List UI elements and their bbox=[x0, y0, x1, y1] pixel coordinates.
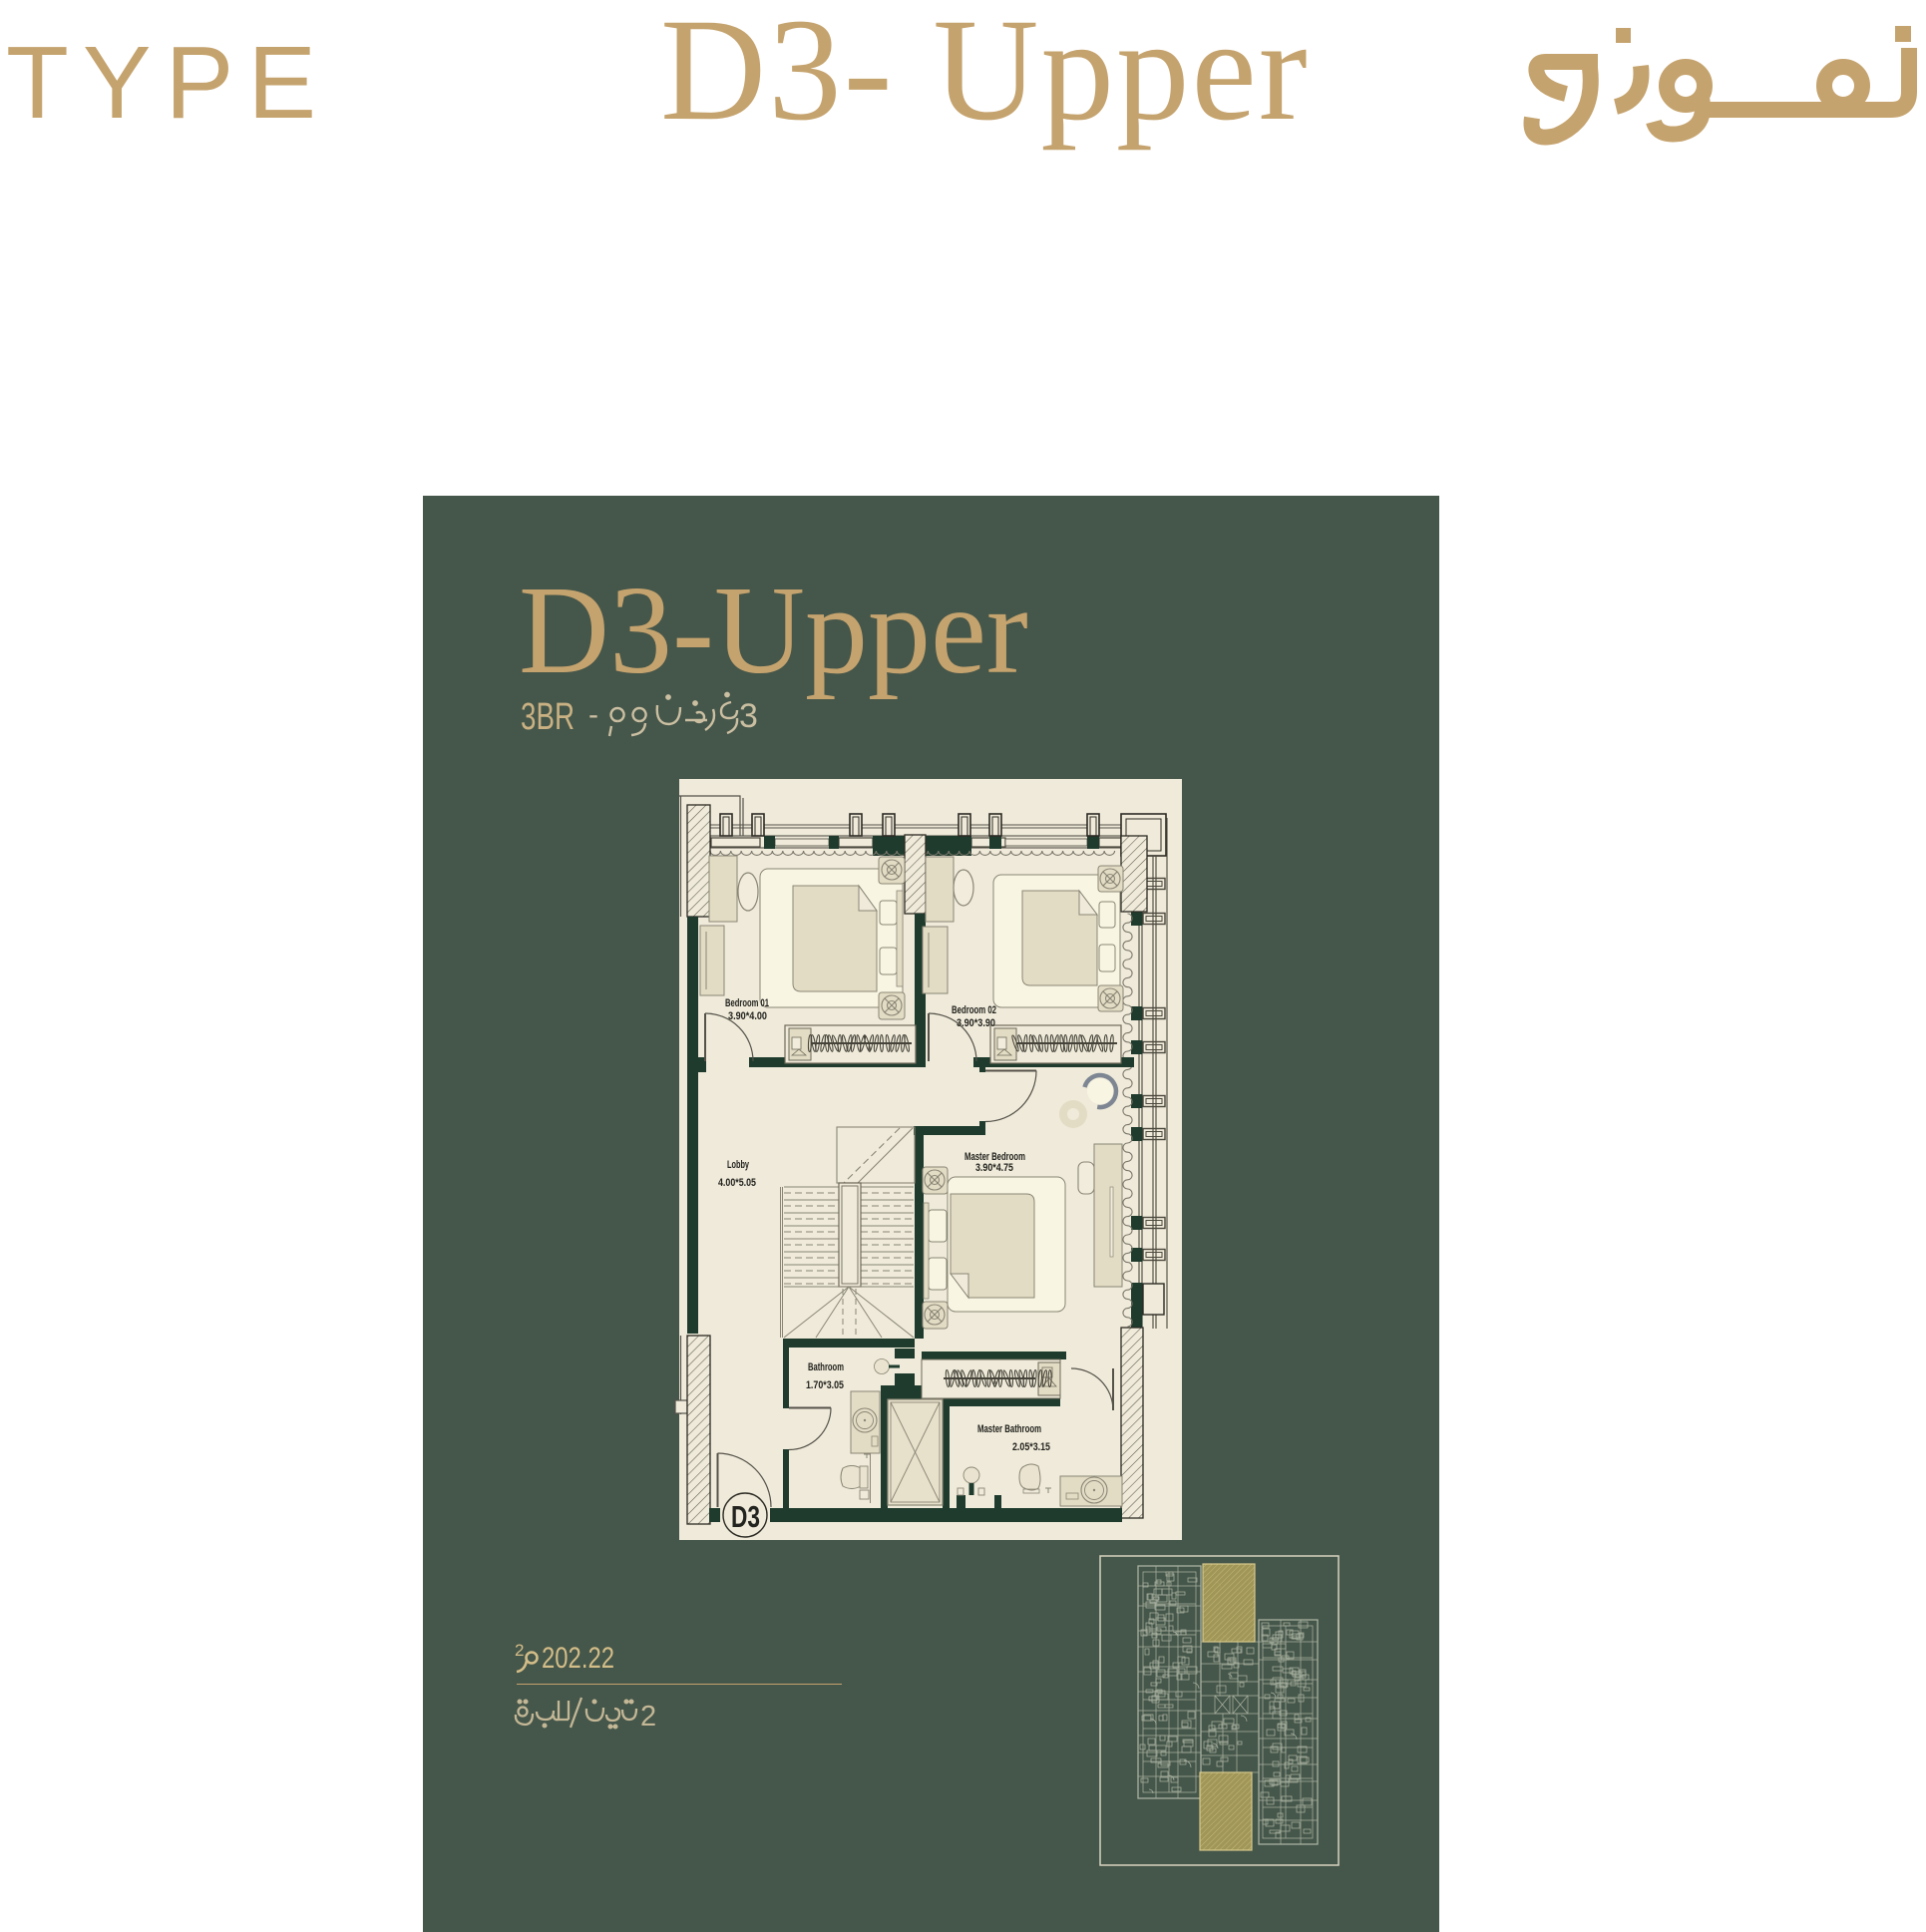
svg-text:Master Bathroom: Master Bathroom bbox=[977, 1423, 1041, 1435]
svg-text:4.00*5.05: 4.00*5.05 bbox=[718, 1177, 756, 1189]
svg-text:3BR: 3BR bbox=[521, 696, 575, 738]
svg-text:3: 3 bbox=[739, 697, 758, 735]
svg-text:D3: D3 bbox=[731, 1499, 760, 1534]
svg-text:-: - bbox=[588, 698, 598, 731]
svg-text:3.90*4.75: 3.90*4.75 bbox=[975, 1162, 1013, 1174]
svg-text:Bathroom: Bathroom bbox=[808, 1361, 844, 1373]
svg-text:2: 2 bbox=[640, 1701, 656, 1733]
svg-text:202.22: 202.22 bbox=[542, 1642, 614, 1675]
svg-text:2.05*3.15: 2.05*3.15 bbox=[1012, 1441, 1050, 1453]
svg-text:Bedroom 02: Bedroom 02 bbox=[952, 1004, 996, 1016]
svg-text:Lobby: Lobby bbox=[727, 1159, 750, 1171]
svg-text:Bedroom 01: Bedroom 01 bbox=[725, 997, 769, 1009]
svg-text:2: 2 bbox=[515, 1641, 524, 1660]
svg-text:1.70*3.05: 1.70*3.05 bbox=[806, 1379, 844, 1391]
svg-text:3.90*4.00: 3.90*4.00 bbox=[728, 1010, 767, 1022]
